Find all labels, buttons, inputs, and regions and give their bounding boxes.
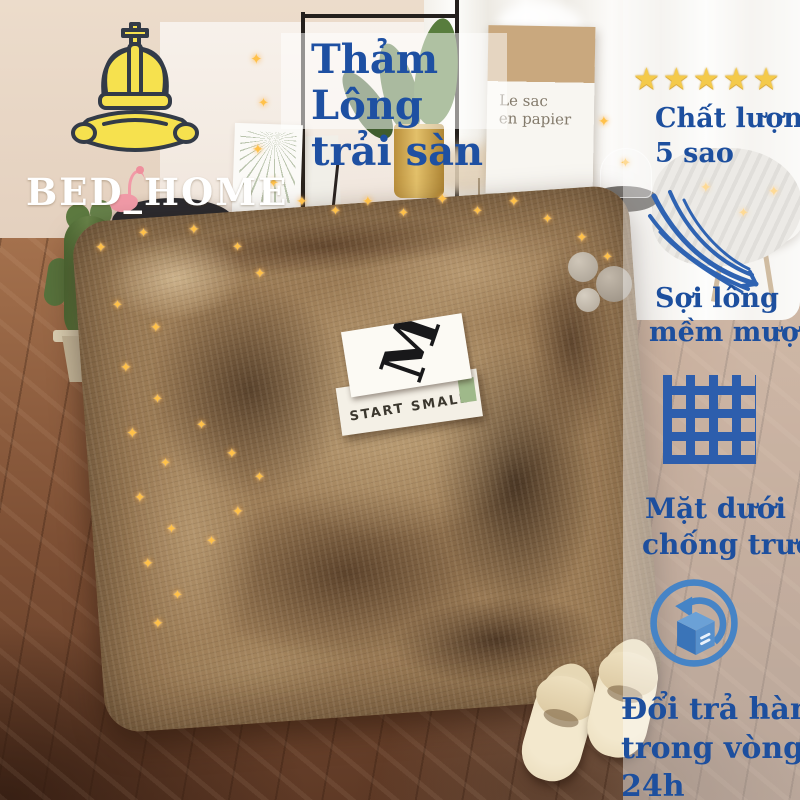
fairy-light-icon xyxy=(172,588,183,603)
fairy-light-icon xyxy=(120,360,132,376)
crown-on-pillow-icon xyxy=(70,20,200,170)
fairy-light-icon xyxy=(188,222,200,238)
badge-line1: Thảm Lông xyxy=(311,37,507,129)
fairy-light-icon xyxy=(126,424,139,442)
fairy-light-icon xyxy=(602,250,613,265)
fairy-light-icon xyxy=(254,266,266,282)
brand-logo: BED_HOME xyxy=(18,12,254,222)
rating-label-line2: 5 sao xyxy=(655,138,734,169)
fairy-light-icon xyxy=(142,556,154,572)
fairy-light-icon xyxy=(542,212,553,227)
fairy-light-icon xyxy=(296,194,308,210)
title-badge: Thảm Lông trải sàn xyxy=(281,33,507,129)
fairy-light-icon xyxy=(258,96,269,111)
fairy-light-icon xyxy=(206,534,217,549)
yarn-ball xyxy=(568,252,598,282)
feature-soft-line2: mềm mượt xyxy=(649,317,800,348)
anti-slip-grid-icon xyxy=(663,375,756,464)
book-spine-title: START SMALL xyxy=(349,391,471,425)
fairy-light-icon xyxy=(508,194,520,210)
feature-antislip-line2: chống trượt xyxy=(642,528,800,561)
star-icon xyxy=(693,62,720,97)
fairy-light-icon xyxy=(166,522,177,537)
fairy-light-icon xyxy=(138,226,149,241)
feature-antislip-line1: Mặt dưới xyxy=(645,492,786,525)
fairy-light-icon xyxy=(598,114,610,130)
book-cover-letter: M xyxy=(372,313,450,388)
fairy-light-icon xyxy=(196,418,207,433)
feature-return-line3: 24h xyxy=(621,769,685,800)
fairy-light-icon xyxy=(232,240,243,255)
star-icon xyxy=(663,62,690,97)
clothes-rack xyxy=(301,14,459,18)
feature-return-line1: Đổi trả hàng xyxy=(621,692,800,727)
return-package-icon xyxy=(647,576,741,670)
fairy-light-icon xyxy=(134,490,146,506)
fairy-light-icon xyxy=(254,470,265,485)
fairy-light-icon xyxy=(160,456,171,471)
rating-label-line1: Chất lượng xyxy=(655,103,800,134)
fairy-light-icon xyxy=(112,298,123,313)
fairy-light-icon xyxy=(398,206,409,221)
fairy-light-icon xyxy=(362,194,374,210)
five-star-rating xyxy=(633,62,799,97)
badge-line2: trải sàn xyxy=(311,129,507,175)
fairy-light-icon xyxy=(152,616,164,632)
book-stack: START SMALL M xyxy=(330,315,489,446)
fairy-light-icon xyxy=(330,204,341,219)
star-icon xyxy=(753,62,780,97)
fairy-light-icon xyxy=(150,320,162,336)
yarn-ball xyxy=(576,288,600,312)
book-label xyxy=(458,377,477,403)
fairy-light-icon xyxy=(576,230,588,246)
fairy-light-icon xyxy=(226,446,238,462)
brand-name: BED_HOME xyxy=(26,170,250,214)
fairy-light-icon xyxy=(472,204,483,219)
star-icon xyxy=(633,62,660,97)
fairy-light-icon xyxy=(152,392,163,407)
star-icon xyxy=(723,62,750,97)
fairy-light-icon xyxy=(436,190,449,208)
fairy-light-icon xyxy=(95,240,107,256)
fairy-light-icon xyxy=(232,504,244,520)
feature-return-line2: trong vòng xyxy=(621,731,800,766)
paper-bag-title: Le sac en papier xyxy=(499,91,572,128)
product-image: Le sac en papier NATURE PARKE ST xyxy=(0,0,800,800)
feature-soft-line1: Sợi lông xyxy=(655,283,779,314)
